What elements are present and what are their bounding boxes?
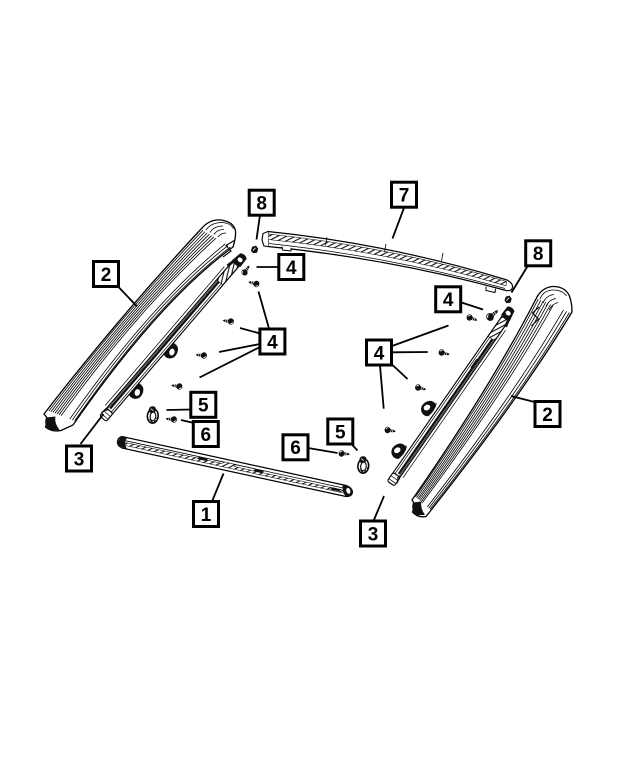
svg-text:2: 2 bbox=[542, 405, 553, 426]
svg-text:6: 6 bbox=[290, 438, 301, 459]
svg-text:4: 4 bbox=[286, 258, 297, 279]
svg-text:4: 4 bbox=[267, 332, 278, 353]
svg-text:6: 6 bbox=[201, 425, 212, 446]
svg-text:3: 3 bbox=[368, 524, 379, 545]
svg-text:4: 4 bbox=[374, 343, 385, 364]
svg-text:4: 4 bbox=[443, 290, 454, 311]
svg-text:2: 2 bbox=[101, 265, 112, 286]
svg-text:8: 8 bbox=[533, 244, 544, 265]
svg-text:7: 7 bbox=[399, 186, 410, 207]
svg-text:3: 3 bbox=[74, 449, 85, 470]
svg-text:1: 1 bbox=[201, 505, 212, 526]
svg-text:5: 5 bbox=[335, 422, 346, 443]
svg-text:5: 5 bbox=[198, 396, 209, 417]
svg-text:8: 8 bbox=[256, 194, 267, 215]
